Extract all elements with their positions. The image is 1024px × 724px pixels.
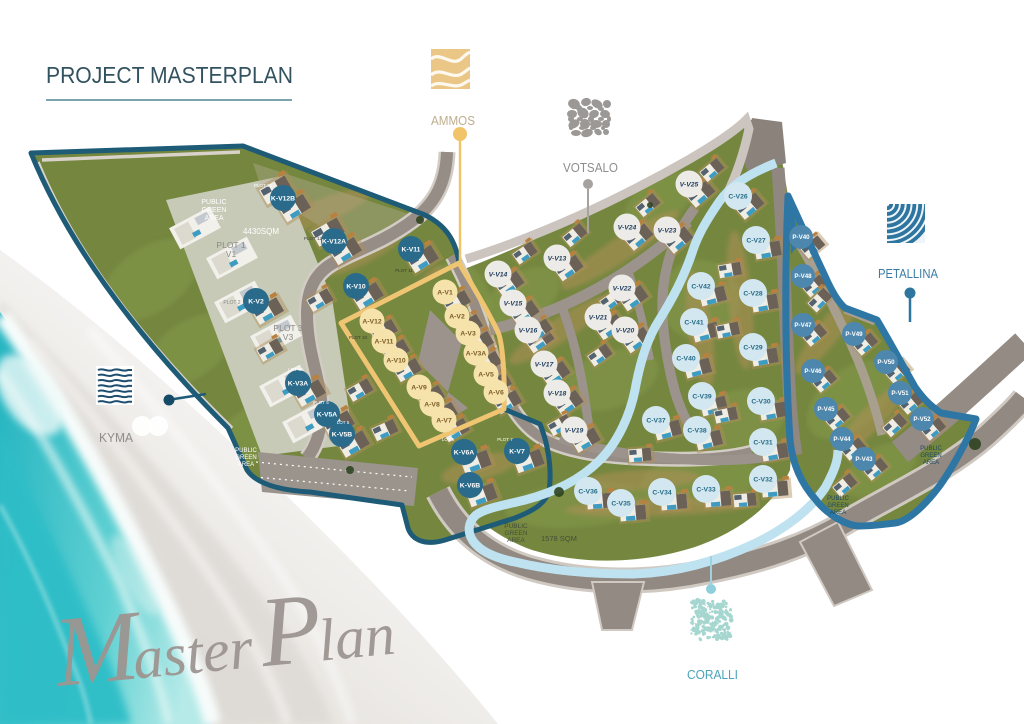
svg-text:A-V12: A-V12 <box>362 318 381 325</box>
svg-text:C-V36: C-V36 <box>578 488 597 495</box>
svg-text:V-V18: V-V18 <box>548 390 567 397</box>
svg-text:P-V44: P-V44 <box>833 436 851 443</box>
svg-text:C-V39: C-V39 <box>692 393 711 400</box>
svg-text:1578 SQM: 1578 SQM <box>541 534 577 543</box>
svg-text:K-V5A: K-V5A <box>317 411 337 418</box>
svg-text:P-V52: P-V52 <box>913 416 931 423</box>
svg-text:A-V7: A-V7 <box>436 417 452 424</box>
svg-text:C-V26: C-V26 <box>728 193 747 200</box>
svg-text:GREEN: GREEN <box>202 207 227 214</box>
svg-text:P-V40: P-V40 <box>792 234 810 241</box>
svg-text:C-V32: C-V32 <box>753 476 772 483</box>
svg-text:4430SQM: 4430SQM <box>243 227 279 236</box>
svg-text:V-V13: V-V13 <box>548 255 567 262</box>
svg-text:AREA: AREA <box>507 537 525 544</box>
svg-text:LOT 5: LOT 5 <box>337 420 350 425</box>
svg-text:V-V15: V-V15 <box>504 300 523 307</box>
svg-text:A-V6: A-V6 <box>488 389 504 396</box>
svg-text:PUBLIC: PUBLIC <box>235 448 257 454</box>
svg-text:P-V45: P-V45 <box>817 406 835 413</box>
svg-text:C-V40: C-V40 <box>676 355 695 362</box>
svg-text:C-V31: C-V31 <box>753 439 772 446</box>
svg-text:K-V10: K-V10 <box>346 283 365 290</box>
svg-text:V-V23: V-V23 <box>658 227 677 234</box>
svg-text:P-V51: P-V51 <box>891 390 909 397</box>
svg-text:K-V12B: K-V12B <box>271 195 295 202</box>
svg-text:PLOT 7: PLOT 7 <box>497 437 513 442</box>
svg-text:K-V3A: K-V3A <box>288 380 308 387</box>
svg-text:K-V5B: K-V5B <box>332 431 352 438</box>
svg-text:A-V8: A-V8 <box>424 401 440 408</box>
svg-text:PUBLIC: PUBLIC <box>504 523 528 530</box>
svg-text:C-V34: C-V34 <box>652 489 671 496</box>
svg-text:VOTSALO: VOTSALO <box>563 160 618 175</box>
svg-text:C-V41: C-V41 <box>684 319 703 326</box>
svg-text:A-V10: A-V10 <box>386 357 405 364</box>
svg-text:K-V12A: K-V12A <box>322 238 346 245</box>
svg-text:K-V2: K-V2 <box>248 298 264 305</box>
svg-text:P-V46: P-V46 <box>804 368 822 375</box>
svg-text:AREA: AREA <box>204 215 223 222</box>
svg-text:V-V20: V-V20 <box>616 327 635 334</box>
svg-text:K-V7: K-V7 <box>509 448 525 455</box>
svg-text:C-V37: C-V37 <box>646 417 665 424</box>
svg-text:AREA: AREA <box>923 460 939 466</box>
svg-text:C-V38: C-V38 <box>687 427 706 434</box>
svg-text:K-V6B: K-V6B <box>460 482 480 489</box>
svg-text:KYMA: KYMA <box>99 430 133 445</box>
svg-text:A-V3A: A-V3A <box>466 350 486 357</box>
svg-text:AMMOS: AMMOS <box>431 113 475 128</box>
svg-text:C-V29: C-V29 <box>743 344 762 351</box>
svg-text:PUBLIC: PUBLIC <box>920 446 942 452</box>
svg-text:V-V21: V-V21 <box>589 314 608 321</box>
svg-text:A-V3: A-V3 <box>460 330 476 337</box>
svg-text:V-V16: V-V16 <box>519 327 538 334</box>
svg-text:V-V19: V-V19 <box>565 427 584 434</box>
svg-text:PETALLINA: PETALLINA <box>878 266 938 281</box>
svg-text:GREEN: GREEN <box>235 455 256 461</box>
svg-text:PLOT 12: PLOT 12 <box>304 236 322 241</box>
svg-text:A-V9: A-V9 <box>411 384 427 391</box>
svg-text:LOT 6: LOT 6 <box>442 437 455 442</box>
svg-text:K-V6A: K-V6A <box>454 449 474 456</box>
svg-text:P-V48: P-V48 <box>794 273 812 280</box>
svg-text:V-V25: V-V25 <box>680 181 699 188</box>
svg-text:A-V2: A-V2 <box>449 313 465 320</box>
svg-text:PLOT 11: PLOT 11 <box>395 268 413 273</box>
svg-text:A-V5: A-V5 <box>478 371 494 378</box>
svg-text:V-V14: V-V14 <box>489 271 508 278</box>
svg-text:GREEN: GREEN <box>920 453 941 459</box>
svg-text:P-V47: P-V47 <box>794 322 812 329</box>
svg-text:AREA: AREA <box>238 462 254 468</box>
svg-text:V1: V1 <box>226 249 237 259</box>
svg-text:C-V42: C-V42 <box>691 283 710 290</box>
svg-text:C-V33: C-V33 <box>696 486 715 493</box>
svg-text:PUBLIC: PUBLIC <box>827 496 849 502</box>
svg-text:P-V49: P-V49 <box>845 331 863 338</box>
svg-text:CORALLI: CORALLI <box>687 667 738 682</box>
svg-text:LOT 3A: LOT 3A <box>288 367 303 372</box>
svg-text:C-V27: C-V27 <box>746 237 765 244</box>
svg-text:V-V24: V-V24 <box>618 224 637 231</box>
svg-text:V-V17: V-V17 <box>535 361 555 368</box>
svg-text:PLOT 12: PLOT 12 <box>254 183 272 188</box>
svg-text:GREEN: GREEN <box>504 530 527 537</box>
svg-text:PLOT 10: PLOT 10 <box>349 335 367 340</box>
svg-text:GREEN: GREEN <box>827 503 848 509</box>
svg-text:A-V1: A-V1 <box>437 289 453 296</box>
svg-text:K-V11: K-V11 <box>402 246 421 253</box>
svg-text:PLOT 5: PLOT 5 <box>313 400 329 405</box>
svg-text:P-V43: P-V43 <box>855 456 873 463</box>
svg-text:P-V50: P-V50 <box>877 359 895 366</box>
svg-text:PROJECT MASTERPLAN: PROJECT MASTERPLAN <box>46 62 293 88</box>
svg-text:V-V22: V-V22 <box>613 285 632 292</box>
svg-text:C-V28: C-V28 <box>743 290 762 297</box>
svg-text:PLOT 2: PLOT 2 <box>223 300 240 306</box>
svg-text:PUBLIC: PUBLIC <box>201 199 226 206</box>
svg-text:V3: V3 <box>283 332 294 342</box>
svg-text:A-V11: A-V11 <box>375 338 394 345</box>
svg-text:C-V30: C-V30 <box>751 398 770 405</box>
svg-text:C-V35: C-V35 <box>611 500 630 507</box>
svg-text:AREA: AREA <box>830 510 846 516</box>
